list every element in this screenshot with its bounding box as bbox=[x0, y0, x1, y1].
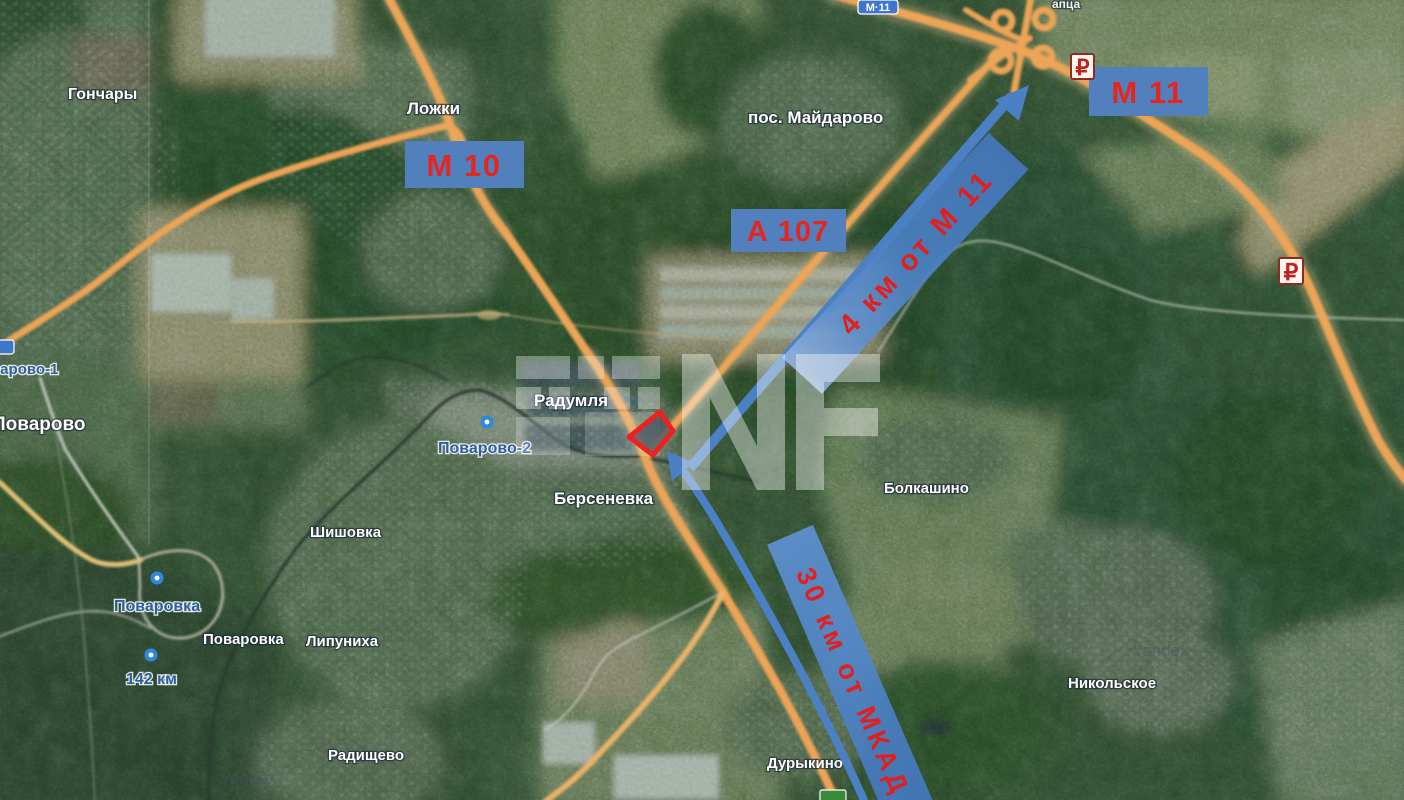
svg-text:Поварово: Поварово bbox=[0, 414, 86, 435]
svg-text:Болкашино: Болкашино bbox=[884, 480, 969, 497]
svg-text:₽: ₽ bbox=[1284, 259, 1299, 285]
svg-text:Гончары: Гончары bbox=[68, 86, 137, 103]
svg-text:Ложки: Ложки bbox=[407, 99, 460, 118]
svg-text:М·11: М·11 bbox=[866, 2, 890, 14]
svg-text:Yandex: Yandex bbox=[220, 769, 277, 788]
svg-text:Радумля: Радумля bbox=[534, 391, 608, 410]
svg-text:Дурыкино: Дурыкино bbox=[767, 755, 843, 772]
svg-text:апца: апца bbox=[1052, 0, 1080, 11]
svg-text:Шишовка: Шишовка bbox=[310, 524, 382, 541]
svg-text:Поваровка: Поваровка bbox=[114, 598, 200, 615]
svg-text:пос. Майдарово: пос. Майдарово bbox=[748, 108, 883, 127]
svg-text:оварово-1: оварово-1 bbox=[0, 361, 58, 378]
svg-text:142 км: 142 км bbox=[126, 671, 177, 688]
svg-text:М 10: М 10 bbox=[427, 148, 502, 183]
svg-text:Радищево: Радищево bbox=[328, 747, 404, 764]
svg-text:Липуниха: Липуниха bbox=[306, 633, 379, 650]
svg-text:Никольское: Никольское bbox=[1068, 675, 1156, 692]
svg-text:М 11: М 11 bbox=[1111, 75, 1184, 110]
svg-text:А 107: А 107 bbox=[747, 216, 829, 248]
svg-text:Берсеневка: Берсеневка bbox=[554, 489, 654, 508]
svg-text:Yandex: Yandex bbox=[1132, 641, 1189, 660]
svg-text:₽: ₽ bbox=[1076, 55, 1090, 80]
svg-text:Поваровка: Поваровка bbox=[203, 631, 284, 648]
